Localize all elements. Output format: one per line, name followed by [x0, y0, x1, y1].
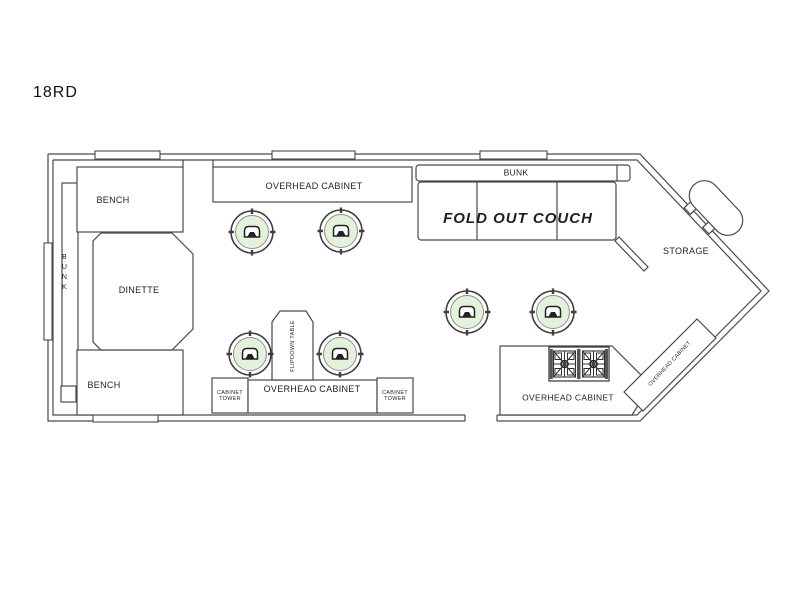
- overhead-cabinet-top-label: OVERHEAD CABINET: [266, 182, 363, 192]
- entry-door-jambs: [465, 415, 497, 421]
- stove-cooktop-icon: [549, 347, 609, 381]
- window: [95, 151, 160, 159]
- propane-tank: [677, 174, 749, 247]
- overhead-cabinet-mid-label: OVERHEAD CABINET: [264, 385, 361, 395]
- window: [480, 151, 547, 159]
- storage-label: STORAGE: [663, 247, 709, 257]
- bench-top-label: BENCH: [96, 196, 129, 206]
- cabinet-tower-left-label: CABINET TOWER: [214, 390, 246, 402]
- wall-stub-lines: [183, 160, 213, 167]
- bunk-left-label: BUNK: [60, 254, 68, 294]
- floorplan-canvas: [0, 0, 800, 600]
- floorplan-model-title: 18RD: [33, 84, 78, 102]
- bar-stool: [444, 289, 491, 336]
- flipdown-table-label: FLIPDOWN TABLE: [290, 320, 296, 372]
- cabinet-tower-right-label: CABINET TOWER: [379, 390, 411, 402]
- bar-stool: [530, 289, 577, 336]
- bunk-top-label: BUNK: [504, 168, 529, 177]
- bench-top-box: [77, 167, 183, 232]
- floorplan-page: 18RD BENCH BUNK DINETTE BENCH OVERHEAD C…: [0, 0, 800, 600]
- corner-box: [61, 386, 76, 402]
- overhead-cabinet-kitchen-label: OVERHEAD CABINET: [522, 393, 614, 402]
- bar-stool: [318, 208, 365, 255]
- bar-stool: [229, 209, 276, 256]
- bench-bottom-label: BENCH: [87, 381, 120, 391]
- bar-stool: [317, 331, 364, 378]
- bar-stool: [227, 331, 274, 378]
- window: [44, 243, 52, 340]
- window: [272, 151, 355, 159]
- storage-partition-wall: [615, 237, 648, 271]
- dinette-label: DINETTE: [119, 286, 160, 296]
- fold-out-couch-label: FOLD OUT COUCH: [443, 211, 593, 228]
